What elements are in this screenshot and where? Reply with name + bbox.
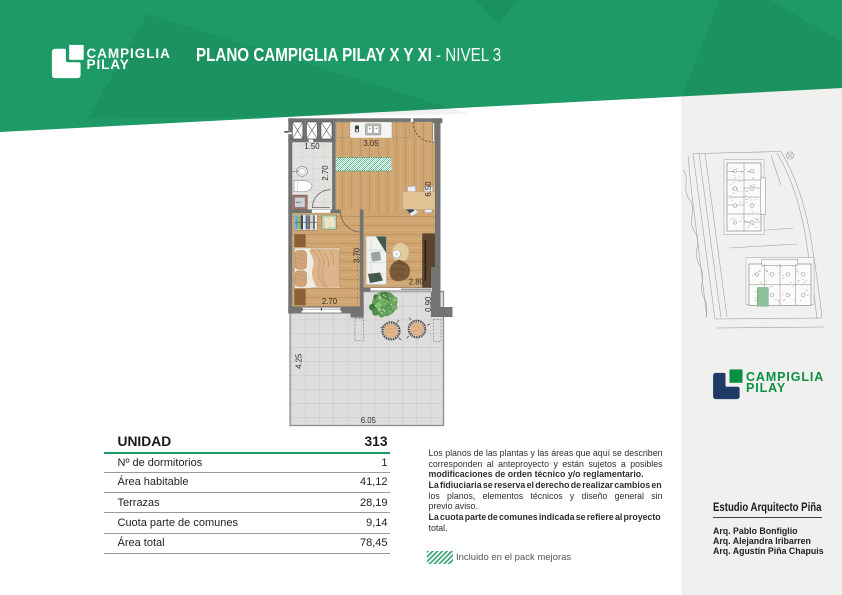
svg-text:1.50: 1.50 bbox=[304, 142, 320, 151]
svg-text:4.25: 4.25 bbox=[294, 353, 303, 369]
svg-text:3.05: 3.05 bbox=[363, 139, 379, 148]
svg-text:0.90: 0.90 bbox=[424, 296, 433, 312]
svg-text:3.70: 3.70 bbox=[353, 247, 362, 263]
svg-text:2.80: 2.80 bbox=[409, 277, 425, 286]
svg-text:6.05: 6.05 bbox=[361, 416, 377, 425]
svg-text:6.50: 6.50 bbox=[424, 181, 433, 197]
svg-text:2.70: 2.70 bbox=[321, 165, 330, 181]
svg-text:2.70: 2.70 bbox=[322, 297, 338, 306]
